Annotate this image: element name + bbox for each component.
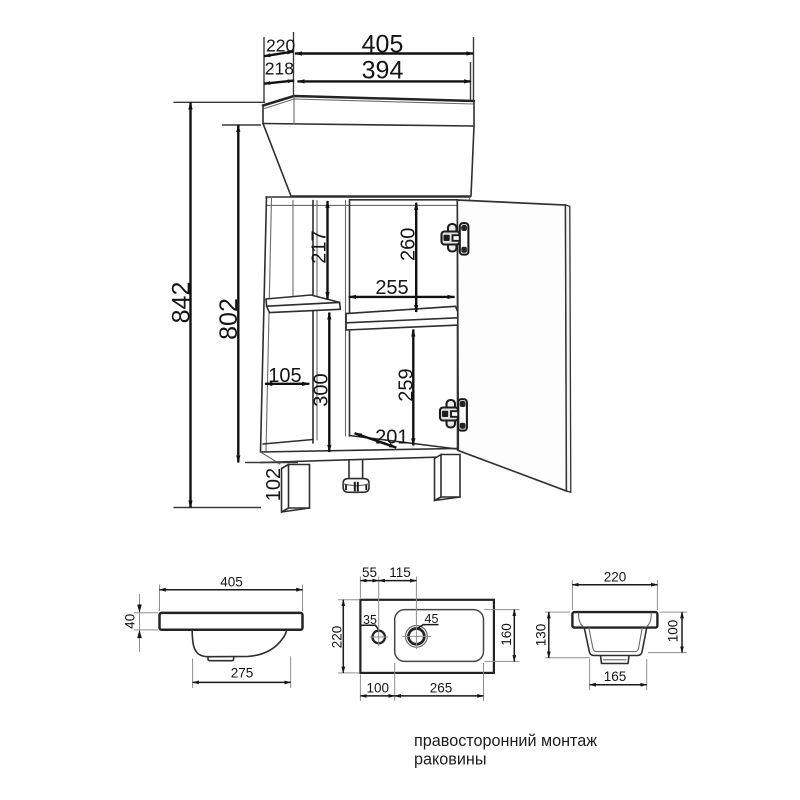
svg-text:802: 802: [215, 298, 243, 340]
svg-text:100: 100: [666, 620, 681, 643]
svg-text:105: 105: [268, 365, 301, 387]
svg-text:300: 300: [311, 373, 333, 406]
svg-text:правосторонний монтаж: правосторонний монтаж: [414, 732, 597, 750]
svg-text:275: 275: [231, 666, 254, 681]
svg-text:394: 394: [362, 57, 404, 85]
svg-text:218: 218: [265, 59, 294, 79]
svg-text:842: 842: [168, 282, 196, 324]
svg-text:217: 217: [309, 230, 331, 263]
svg-text:259: 259: [396, 368, 418, 401]
svg-text:115: 115: [389, 565, 411, 580]
svg-text:35: 35: [363, 613, 377, 627]
svg-text:100: 100: [367, 681, 390, 696]
svg-text:405: 405: [362, 31, 404, 59]
svg-text:раковины: раковины: [414, 751, 487, 769]
svg-text:40: 40: [123, 614, 138, 629]
svg-text:260: 260: [398, 228, 420, 261]
svg-text:255: 255: [375, 277, 408, 299]
svg-text:201: 201: [375, 427, 408, 449]
svg-text:55: 55: [362, 565, 377, 580]
svg-text:220: 220: [266, 36, 295, 56]
svg-text:220: 220: [604, 570, 627, 585]
svg-text:102: 102: [263, 468, 285, 501]
svg-text:130: 130: [533, 624, 548, 647]
svg-text:165: 165: [604, 669, 627, 684]
svg-text:405: 405: [220, 575, 243, 590]
svg-text:220: 220: [330, 626, 345, 649]
svg-text:45: 45: [425, 612, 439, 626]
svg-text:160: 160: [499, 623, 514, 646]
svg-text:265: 265: [430, 681, 453, 696]
